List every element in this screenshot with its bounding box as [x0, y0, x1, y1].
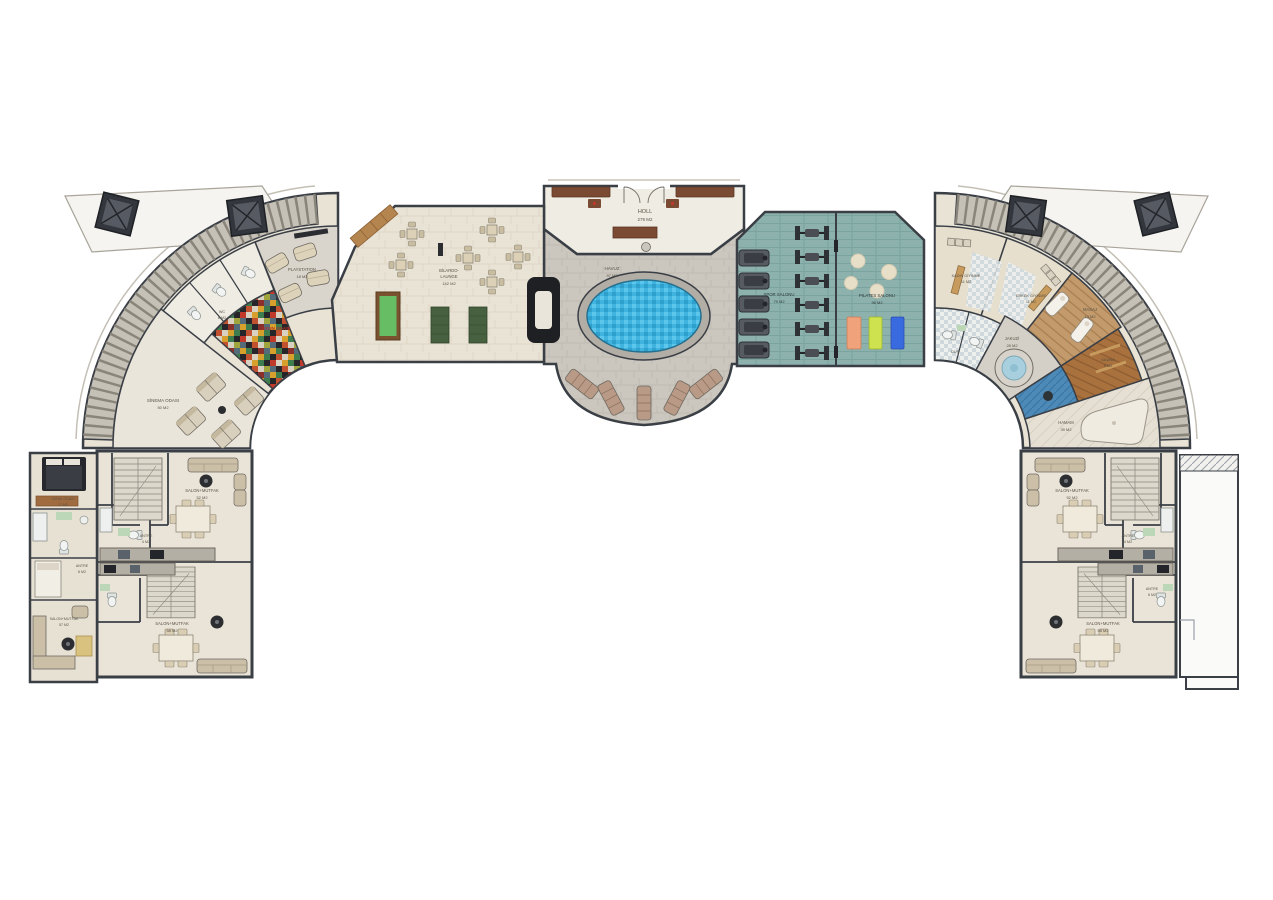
massage-area: 13 M2	[1084, 314, 1096, 319]
playstation-label: PLAYSTATION	[288, 267, 316, 272]
bed-mattress	[46, 466, 82, 489]
playstation-area: 18 M2	[296, 274, 308, 279]
planter	[438, 243, 443, 256]
pool-bar-counter	[535, 291, 552, 329]
elevator	[227, 196, 268, 237]
kitchen-sink	[118, 550, 130, 559]
dining-set	[170, 500, 216, 538]
stove	[104, 565, 116, 573]
bed-pillow	[46, 459, 62, 465]
pilates-area: 96 M2	[871, 300, 883, 305]
jacuzzi-center	[1010, 364, 1018, 372]
cinema-label: SİNEMA ODASI	[147, 397, 179, 403]
sofa	[188, 458, 238, 472]
billiard-area: 142 M2	[442, 281, 456, 286]
toilet	[108, 593, 117, 607]
women-locker-area: 11 M2	[961, 280, 971, 284]
terrace-floor	[1180, 455, 1238, 677]
right-apartment-wing	[1021, 451, 1176, 677]
left-apartment-wing	[97, 451, 252, 677]
sauna-label: SAUNA	[1101, 357, 1115, 362]
stairs	[1111, 458, 1159, 520]
playroom-label: OYUN ODASI	[262, 326, 291, 331]
elevator	[1006, 196, 1047, 237]
stairs	[114, 458, 162, 520]
left-top-salon-label: SALON+MUTFAK	[185, 488, 219, 493]
bed-pillow	[64, 459, 80, 465]
bath-mat	[1143, 528, 1155, 536]
bed-pillow	[37, 563, 59, 570]
pilates-mat-blue	[891, 317, 904, 349]
pool-label: HAVUZ	[605, 266, 620, 271]
right-top-salon-area: 52 M2	[1066, 495, 1078, 500]
elevator	[1134, 192, 1178, 236]
dining-set	[1057, 500, 1103, 538]
jacuzzi-area: 28 M2	[1006, 343, 1018, 348]
column	[642, 243, 651, 252]
pilates-mat-green	[869, 317, 882, 349]
sofa	[1035, 458, 1085, 472]
treadmill	[739, 296, 769, 312]
corner-sofa	[33, 616, 46, 660]
bath-mat	[118, 528, 130, 536]
gym-door-leaf	[834, 240, 838, 252]
right-bottom-salon-area: 58 M2	[1097, 628, 1109, 633]
exercise-ball	[845, 277, 858, 290]
ceiling-fan	[62, 638, 75, 651]
right-top-salon-label: SALON+MUTFAK	[1055, 488, 1089, 493]
sink	[80, 516, 88, 524]
corner-sofa	[33, 656, 75, 669]
cinema-area: 50 M2	[157, 405, 169, 410]
sofa	[1026, 659, 1076, 673]
right-bottom-salon-label: SALON+MUTFAK	[1086, 621, 1120, 626]
bathtub	[33, 513, 47, 541]
gym-label: SPOR SALONU	[763, 292, 794, 297]
amenities-block	[332, 182, 924, 425]
billiard-label-1: BİLARDO-	[439, 268, 459, 273]
hall-bench	[676, 187, 734, 197]
toilet	[60, 541, 69, 555]
wc-area: 6 M2	[218, 316, 226, 320]
armchair	[1027, 474, 1039, 490]
armchair	[234, 474, 246, 490]
armchair	[1027, 490, 1039, 506]
hamam-center	[1112, 421, 1116, 425]
right-mid-antre-area: 6 M2	[1148, 593, 1156, 597]
left-bottom-salon-area: 58 M2	[166, 628, 178, 633]
dining-set	[1074, 629, 1120, 667]
kitchen-sink	[1133, 565, 1143, 573]
dining-set	[153, 629, 199, 667]
right-antre-label: ANTRE	[1122, 534, 1135, 538]
billiard-table-felt	[380, 296, 397, 336]
stove	[1157, 565, 1169, 573]
left-antre-label: ANTRE	[140, 534, 153, 538]
treadmill	[739, 319, 769, 335]
toilet	[1157, 593, 1166, 607]
elevator	[95, 192, 139, 236]
treadmill	[739, 342, 769, 358]
hall-area: 279 M2	[637, 217, 653, 222]
massage-label: MASAJ	[1083, 307, 1097, 312]
lounge-sofa-group	[431, 307, 449, 343]
exercise-ball	[882, 265, 897, 280]
annex-salon-label: SALON+MUTFAK	[50, 617, 79, 621]
left-top-salon-area: 52 M2	[196, 495, 208, 500]
terrace-hatch	[1180, 455, 1238, 471]
shower-tray	[957, 325, 966, 331]
floor-plan-page: HOLL 279 M2 HAVUZ 97 M2 BİLARDO- LAUNGE …	[0, 0, 1273, 900]
hamam-area: 39 M2	[1060, 427, 1072, 432]
cinema-speaker	[218, 406, 226, 414]
exercise-ball	[851, 254, 865, 268]
jacuzzi-label: JAKUZİ	[1005, 336, 1019, 341]
right-terrace	[1180, 455, 1238, 689]
entrance-door-gap	[618, 182, 670, 189]
treadmill	[739, 250, 769, 266]
right-mid-antre-label: ANTRE	[1146, 587, 1159, 591]
armchair	[234, 490, 246, 506]
annex-antre-area: 6 M2	[78, 570, 86, 574]
annex-bedroom-label: YATAK ODASI	[51, 497, 74, 501]
ceiling-fan	[1050, 616, 1063, 629]
hall-label: HOLL	[638, 209, 652, 215]
ceiling-fan	[1060, 475, 1073, 488]
annex-salon-area: 57 M2	[59, 623, 69, 627]
wc-label: WC	[219, 310, 226, 314]
sauna-area: 9 M2	[1104, 364, 1112, 368]
coffee-table	[76, 636, 92, 656]
terrace-tab	[1186, 677, 1238, 689]
kitchen-sink	[130, 565, 140, 573]
shower-tray	[1163, 584, 1173, 591]
hall-bench	[552, 187, 610, 197]
shower-tray	[100, 584, 110, 591]
stove	[1109, 550, 1123, 559]
bathtub	[100, 508, 112, 532]
gym-area: 79 M2	[773, 299, 785, 304]
women-locker-label: KADIN GİYİNME	[952, 273, 981, 278]
lounge-sofa-group	[469, 307, 487, 343]
kitchen-sink	[1143, 550, 1155, 559]
stool-cushion	[671, 202, 674, 205]
reception-desk	[613, 227, 657, 238]
plunge-step	[1043, 391, 1053, 401]
floor-plan-svg: HOLL 279 M2 HAVUZ 97 M2 BİLARDO- LAUNGE …	[0, 0, 1273, 900]
gym-door-leaf	[834, 346, 838, 358]
ceiling-fan	[200, 475, 213, 488]
ceiling-fan	[211, 616, 224, 629]
hamam-label: HAMAM	[1058, 420, 1074, 425]
sun-lounger	[637, 386, 651, 420]
shower-tray	[56, 512, 72, 520]
sofa	[197, 659, 247, 673]
left-bottom-salon-label: SALON+MUTFAK	[155, 621, 189, 626]
shower-label: DUŞ	[951, 350, 959, 354]
men-locker-area: 11 M2	[1026, 300, 1036, 304]
stove	[150, 550, 164, 559]
treadmill	[739, 273, 769, 289]
pilates-mat-orange	[847, 317, 861, 349]
billiard-label-2: LAUNGE	[440, 274, 457, 279]
annex-bedroom-area: 17 M2	[58, 503, 68, 507]
left-antre-area: 4 M2	[142, 540, 150, 544]
annex-antre-label: ANTRE	[76, 564, 89, 568]
pilates-label: PILATES SALONU	[859, 293, 895, 298]
pool-area: 97 M2	[606, 273, 618, 278]
bathtub	[1161, 508, 1173, 532]
men-locker-label: ERKEK GİYİNME	[1016, 293, 1046, 298]
stool-cushion	[593, 202, 596, 205]
swimming-pool	[587, 280, 701, 352]
right-antre-area: 4 M2	[1124, 540, 1132, 544]
